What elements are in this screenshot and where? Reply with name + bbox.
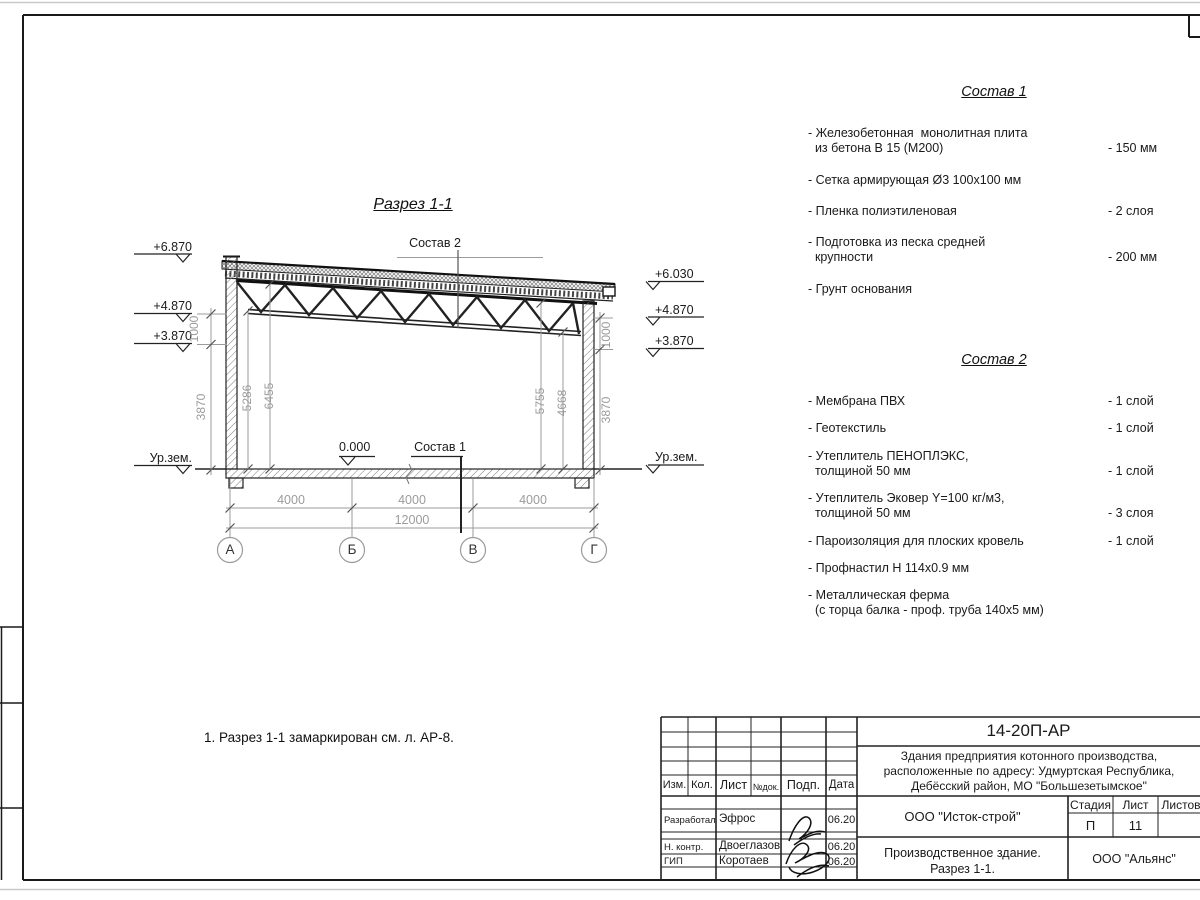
axis-label: Б bbox=[339, 542, 365, 557]
stage-value: П bbox=[1068, 818, 1113, 833]
section-title: Разрез 1-1 bbox=[352, 196, 474, 214]
sostav-item-value: - 1 слой bbox=[1108, 421, 1180, 436]
row-role: ГИП bbox=[664, 856, 683, 867]
elevation-label: +3.870 bbox=[132, 329, 192, 343]
elevation-label: +4.870 bbox=[132, 299, 192, 313]
list-item: - Утеплитель ПЕНОПЛЭКС, толщиной 50 мм -… bbox=[808, 449, 1180, 480]
dim-label: 1000 bbox=[599, 305, 613, 365]
list-item: - Пароизоляция для плоских кровель - 1 с… bbox=[808, 534, 1180, 549]
stage-label: Стадия bbox=[1068, 798, 1113, 812]
col-podp: Подп. bbox=[781, 778, 826, 792]
sostav-item-value: - 150 мм bbox=[1108, 141, 1180, 156]
col-data: Дата bbox=[826, 779, 857, 791]
col-ndoc: №док. bbox=[751, 782, 781, 792]
dim-label: 5286 bbox=[240, 368, 254, 428]
row-date: 06.20 bbox=[826, 814, 857, 826]
sostav-item-value: - 200 мм bbox=[1108, 250, 1180, 265]
drawing-sheet: Разрез 1-1 +6.870 +4.870 +3.870 Ур.зем. … bbox=[0, 0, 1200, 900]
sostav2-list: Состав 2 - Мембрана ПВХ - 1 слой - Геоте… bbox=[808, 352, 1180, 631]
ground-level-label: Ур.зем. bbox=[132, 451, 192, 465]
object-description: Здания предприятия котонного производств… bbox=[860, 749, 1198, 794]
sostav1-list: Состав 1 - Железобетонная монолитная пли… bbox=[808, 84, 1180, 313]
zero-level-label: 0.000 bbox=[339, 440, 370, 454]
doc-code: 14-20П-АР bbox=[857, 721, 1200, 741]
dim-label: 4000 bbox=[261, 493, 321, 507]
list-item: - Профнастил Н 114х0.9 мм bbox=[808, 561, 1180, 576]
list-item: - Пленка полиэтиленовая - 2 слоя bbox=[808, 204, 1180, 219]
elevation-mark-right-6030 bbox=[646, 282, 704, 290]
list-item: - Мембрана ПВХ - 1 слой bbox=[808, 394, 1180, 409]
left-wall bbox=[226, 257, 237, 469]
sheet-label: Лист bbox=[1113, 798, 1158, 812]
note-text: 1. Разрез 1-1 замаркирован см. л. АР-8. bbox=[204, 730, 454, 745]
callout-sostav2: Состав 2 bbox=[403, 236, 467, 250]
drawing-subtitle: Производственное здание. Разрез 1-1. bbox=[860, 845, 1065, 877]
right-wall bbox=[583, 301, 594, 469]
elevation-mark-left-ground bbox=[134, 466, 192, 474]
elevation-mark-left-6870 bbox=[134, 254, 192, 262]
sostav-item-value: - 1 слой bbox=[1108, 534, 1180, 549]
sostav-item-value: - 1 слой bbox=[1108, 394, 1180, 409]
elevation-label: +6.870 bbox=[132, 240, 192, 254]
list-item: - Металлическая ферма (с торца балка - п… bbox=[808, 588, 1180, 619]
elevation-mark-right-4870 bbox=[646, 317, 704, 325]
elevation-label: +6.030 bbox=[655, 267, 717, 281]
floor-slab bbox=[226, 469, 594, 478]
row-date: 06.20 bbox=[826, 841, 857, 853]
org-name: ООО "Исток-строй" bbox=[857, 809, 1068, 824]
axis-label: Г bbox=[581, 542, 607, 557]
roof-truss bbox=[236, 281, 597, 336]
dim-label: 12000 bbox=[382, 513, 442, 527]
dim-label: 4668 bbox=[555, 373, 569, 433]
col-izm: Изм. bbox=[661, 779, 688, 791]
signatures bbox=[786, 817, 829, 877]
sheet-number: 11 bbox=[1113, 818, 1158, 833]
dim-label: 5755 bbox=[533, 371, 547, 431]
dim-label: 4000 bbox=[382, 493, 442, 507]
row-role: Н. контр. bbox=[664, 842, 703, 853]
list-item: - Железобетонная монолитная плита из бет… bbox=[808, 126, 1180, 157]
sheets-label: Листов bbox=[1158, 798, 1200, 812]
elevation-mark-right-3870 bbox=[646, 349, 704, 357]
ground-level-label: Ур.зем. bbox=[655, 450, 717, 464]
list-item: - Геотекстиль - 1 слой bbox=[808, 421, 1180, 436]
dim-label: 3870 bbox=[599, 380, 613, 440]
contractor-name: ООО "Альянс" bbox=[1068, 852, 1200, 866]
row-name: Эфрос bbox=[719, 813, 755, 825]
col-list: Лист bbox=[716, 778, 751, 792]
dim-label: 3870 bbox=[194, 377, 208, 437]
elevation-label: +4.870 bbox=[655, 303, 717, 317]
elevation-mark-left-4870 bbox=[134, 314, 192, 322]
dim-label: 6455 bbox=[262, 366, 276, 426]
sostav-item-value: - 1 слой bbox=[1108, 464, 1180, 479]
list-item: - Утеплитель Эковер Y=100 кг/м3, толщино… bbox=[808, 491, 1180, 522]
elevation-mark-zero bbox=[339, 457, 375, 466]
sostav-item-value: - 3 слоя bbox=[1108, 506, 1180, 521]
signature-dvoeglazov-korotaev bbox=[786, 843, 829, 877]
row-date: 06.20 bbox=[826, 856, 857, 868]
list-item: - Подготовка из песка средней крупности … bbox=[808, 235, 1180, 266]
elevation-mark-right-ground bbox=[646, 465, 704, 473]
list-item: - Грунт основания bbox=[808, 282, 1180, 297]
signature-efros bbox=[789, 817, 825, 845]
col-kol: Кол. bbox=[688, 779, 716, 791]
sostav-item-value: - 2 слоя bbox=[1108, 204, 1180, 219]
elevation-mark-left-3870 bbox=[134, 344, 192, 352]
row-role: Разработал bbox=[664, 815, 716, 826]
roof bbox=[222, 257, 615, 302]
sostav1-title: Состав 1 bbox=[808, 84, 1180, 100]
row-name: Двоеглазов bbox=[719, 840, 780, 852]
sostav2-title: Состав 2 bbox=[808, 352, 1180, 368]
dim-label: 1000 bbox=[187, 299, 201, 359]
dim-label: 4000 bbox=[503, 493, 563, 507]
callout-sostav1: Состав 1 bbox=[408, 440, 472, 454]
list-item: - Сетка армирующая Ø3 100х100 мм bbox=[808, 173, 1180, 188]
row-name: Коротаев bbox=[719, 855, 769, 867]
elevation-label: +3.870 bbox=[655, 334, 717, 348]
axis-label: А bbox=[217, 542, 243, 557]
axis-label: В bbox=[460, 542, 486, 557]
